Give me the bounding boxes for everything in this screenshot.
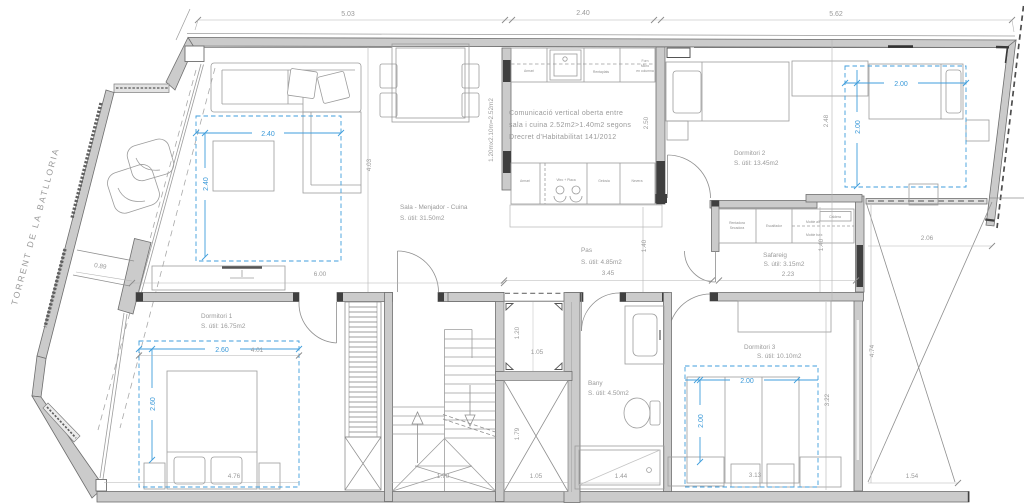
svg-text:S. útil: 4.50m2: S. útil: 4.50m2 [588, 390, 629, 397]
svg-text:Safareig: Safareig [763, 252, 787, 259]
svg-text:1.20: 1.20 [514, 326, 521, 339]
svg-text:1.79: 1.79 [514, 427, 521, 440]
svg-text:Vitro + Placa: Vitro + Placa [556, 178, 575, 182]
svg-text:2.60: 2.60 [150, 397, 157, 411]
svg-text:1.20mx2.10m=2.52m2: 1.20mx2.10m=2.52m2 [488, 98, 495, 162]
svg-text:3.13: 3.13 [749, 472, 762, 479]
svg-text:2.40: 2.40 [261, 131, 275, 138]
svg-text:Sala - Menjador - Cuina: Sala - Menjador - Cuina [400, 204, 468, 211]
svg-text:1.70: 1.70 [437, 473, 450, 480]
svg-text:2.06: 2.06 [921, 235, 934, 242]
svg-text:Drecret d'Habitabilitat 141/20: Drecret d'Habitabilitat 141/2012 [509, 134, 616, 141]
svg-text:2.40: 2.40 [576, 10, 590, 17]
svg-text:S. útil: 10.10m2: S. útil: 10.10m2 [757, 353, 802, 360]
svg-text:Gelosia: Gelosia [598, 179, 610, 183]
svg-text:S. útil: 16.75m2: S. útil: 16.75m2 [201, 323, 246, 330]
svg-text:4.01: 4.01 [251, 347, 264, 354]
svg-text:Rentadora: Rentadora [729, 221, 745, 225]
svg-text:4.74: 4.74 [869, 344, 876, 357]
svg-text:2.60: 2.60 [215, 347, 229, 354]
svg-text:Dormitori 1: Dormitori 1 [201, 313, 233, 320]
svg-text:4.76: 4.76 [228, 473, 241, 480]
svg-text:Bany: Bany [588, 380, 603, 387]
svg-text:Nevera: Nevera [632, 179, 643, 183]
svg-text:4.03: 4.03 [366, 158, 373, 171]
svg-text:sala i cuina 2.52m2>1.40m2 seg: sala i cuina 2.52m2>1.40m2 segons [509, 122, 631, 129]
svg-text:2.40: 2.40 [203, 177, 210, 191]
svg-text:Secadora: Secadora [730, 226, 745, 230]
svg-text:Rentaplats: Rentaplats [593, 70, 610, 74]
svg-text:S. útil: 4.85m2: S. útil: 4.85m2 [581, 259, 622, 266]
svg-text:Caldera: Caldera [829, 215, 841, 219]
svg-text:Armari: Armari [520, 179, 530, 183]
svg-text:5.03: 5.03 [341, 11, 355, 18]
svg-text:1.40: 1.40 [641, 239, 648, 252]
svg-text:2.00: 2.00 [894, 81, 908, 88]
svg-text:Armari: Armari [524, 69, 534, 73]
svg-text:Comunicació vertical oberta e: Comunicació vertical oberta entre [509, 110, 623, 117]
svg-text:2.23: 2.23 [782, 271, 795, 278]
svg-text:2.48: 2.48 [823, 114, 830, 127]
svg-text:Escalfador: Escalfador [766, 224, 783, 228]
svg-text:Moble alt: Moble alt [806, 220, 820, 224]
svg-text:S. útil: 13.45m2: S. útil: 13.45m2 [734, 160, 779, 167]
svg-text:3.45: 3.45 [602, 270, 615, 277]
svg-text:1.05: 1.05 [530, 473, 543, 480]
svg-text:S. útil: 3.15m2: S. útil: 3.15m2 [764, 261, 805, 268]
svg-text:1.05: 1.05 [531, 349, 544, 356]
svg-text:Forn: Forn [642, 59, 649, 63]
svg-text:Pas: Pas [581, 247, 592, 254]
svg-text:3.22: 3.22 [824, 393, 831, 406]
svg-text:6.00: 6.00 [314, 271, 327, 278]
svg-text:1.40: 1.40 [818, 238, 825, 251]
svg-text:Dormitori 2: Dormitori 2 [734, 150, 766, 157]
svg-text:S. útil: 31.50m2: S. útil: 31.50m2 [400, 215, 445, 222]
svg-text:1.54: 1.54 [906, 473, 919, 480]
svg-text:Dormitori 3: Dormitori 3 [744, 344, 776, 351]
svg-text:2.00: 2.00 [855, 120, 862, 134]
svg-text:Micro: Micro [641, 64, 649, 68]
svg-text:2.00: 2.00 [698, 414, 705, 428]
svg-text:5.62: 5.62 [829, 11, 843, 18]
svg-text:1.44: 1.44 [615, 473, 628, 480]
svg-text:2.00: 2.00 [740, 378, 754, 385]
svg-text:2.50: 2.50 [643, 116, 650, 129]
svg-text:en columna: en columna [636, 69, 654, 73]
